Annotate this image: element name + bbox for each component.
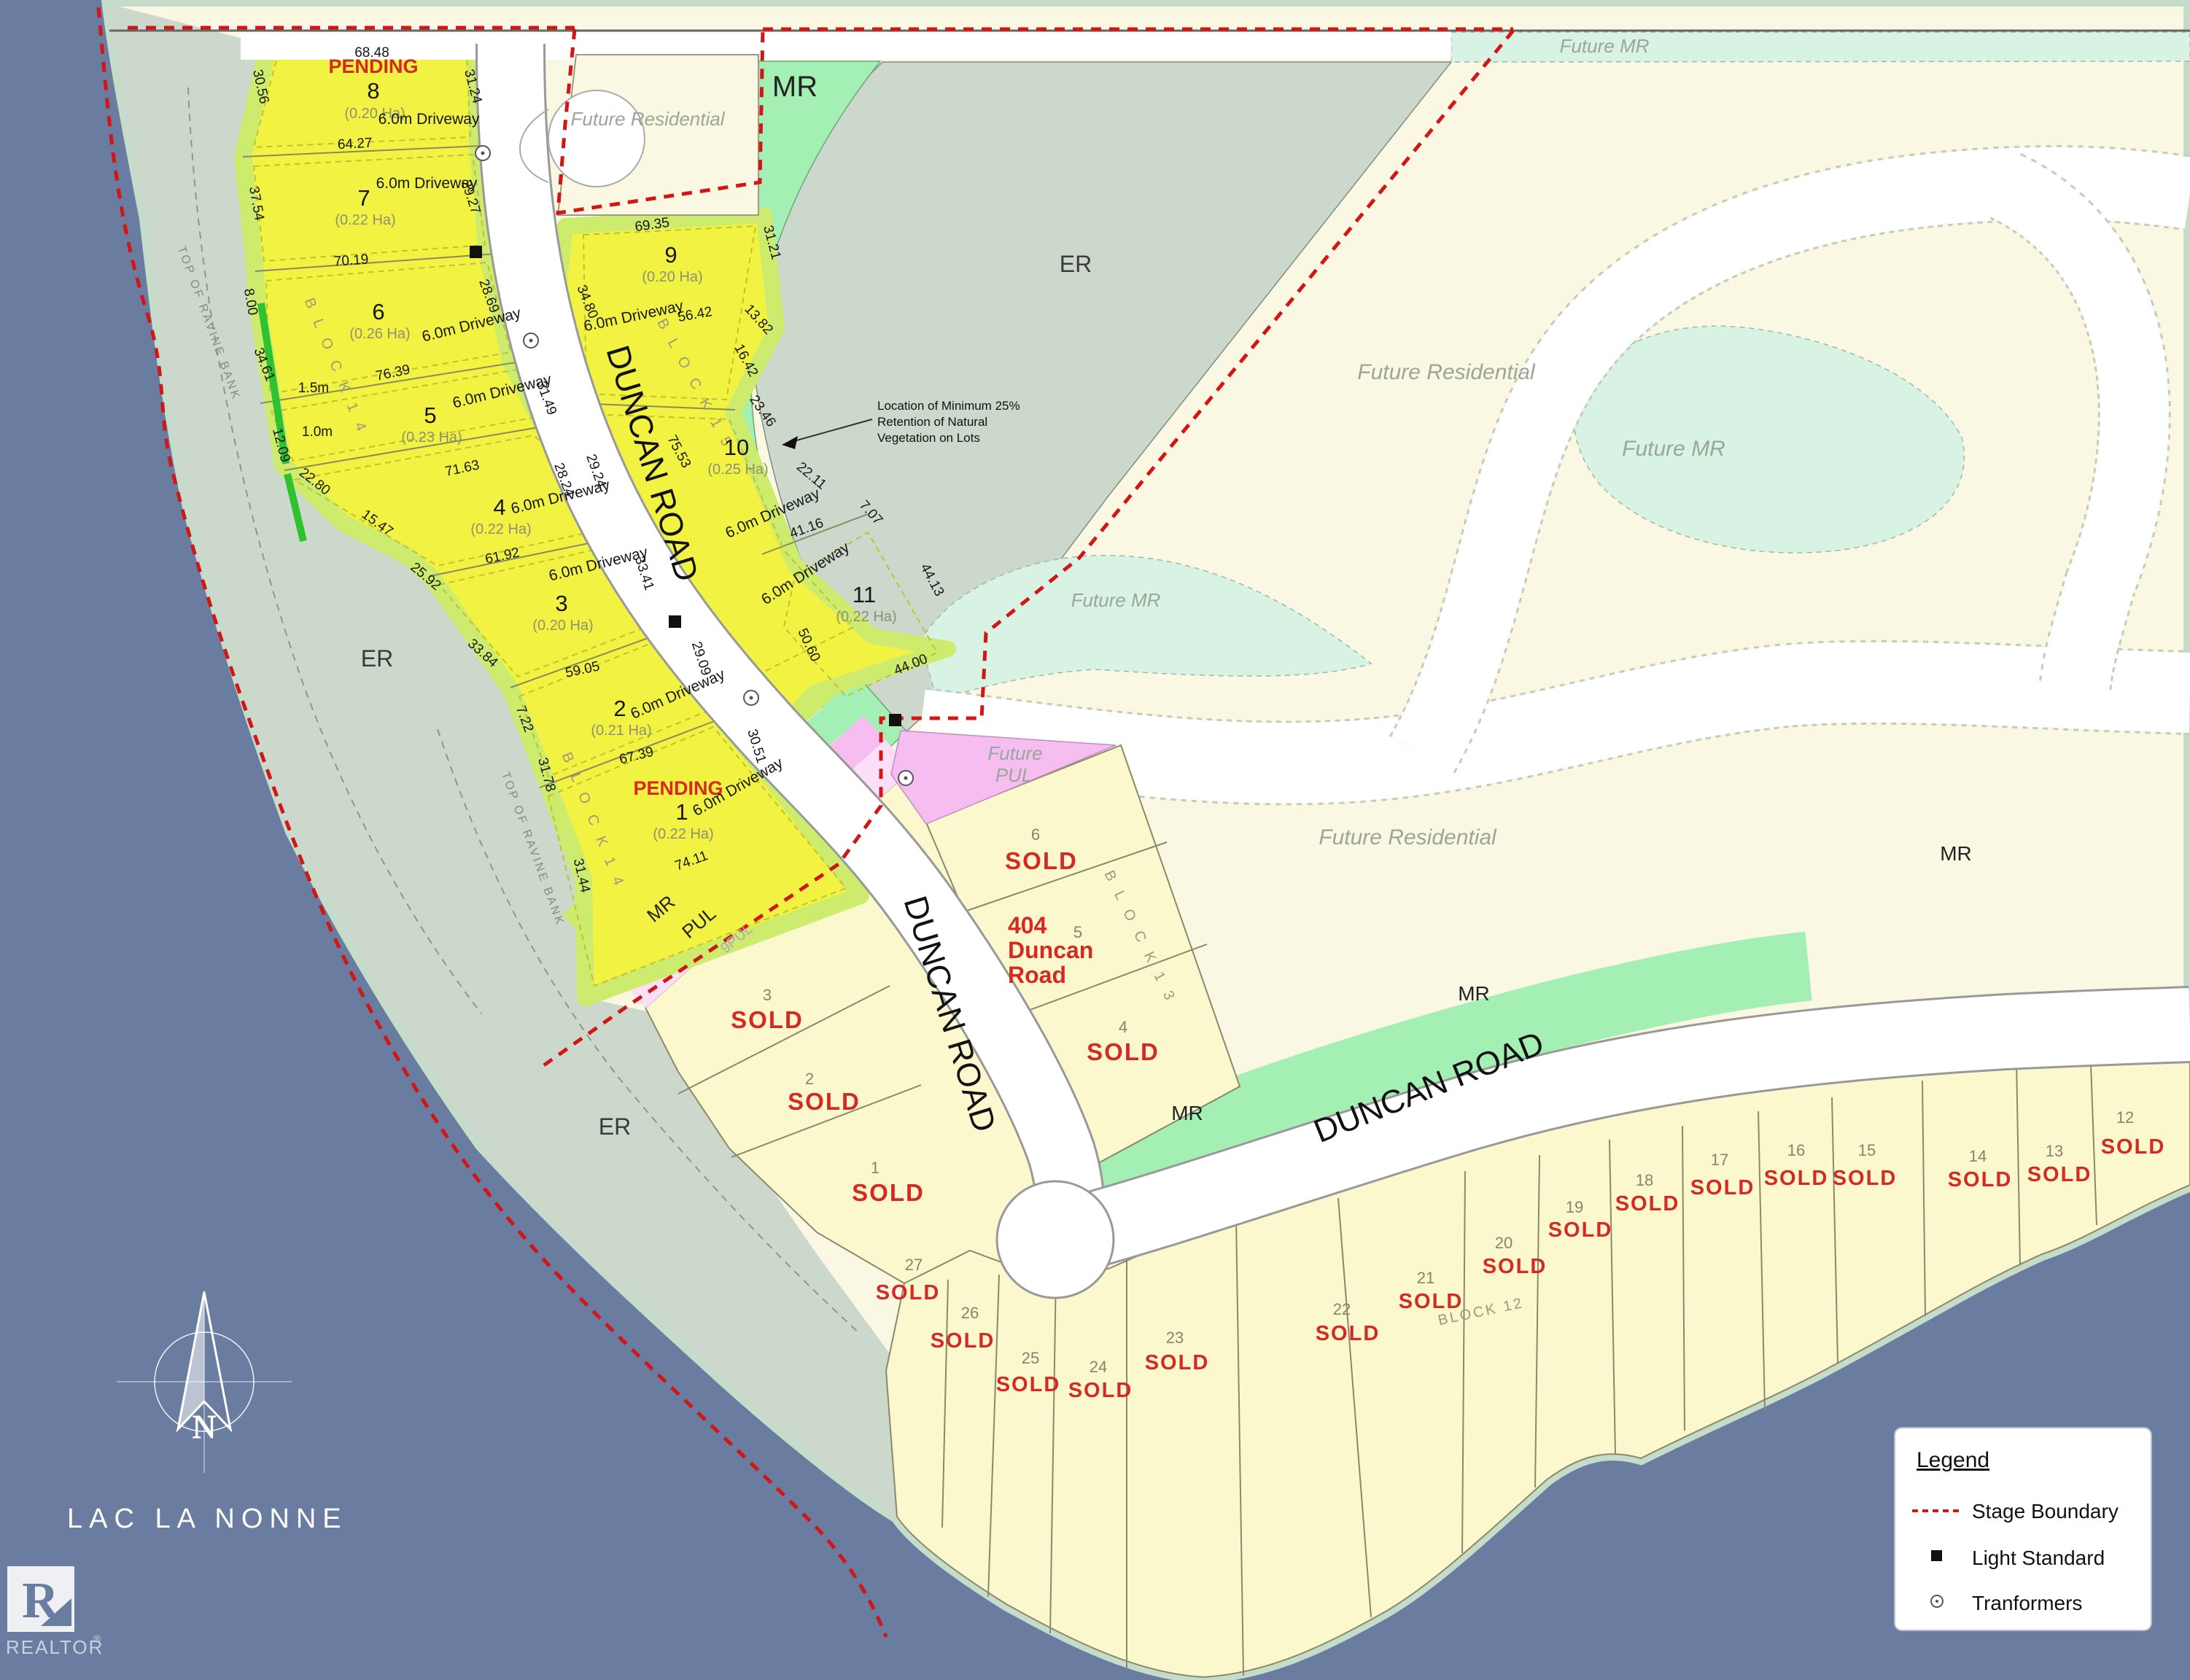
dimension-label: 70.19 — [333, 252, 369, 269]
lot-number: 5 — [424, 402, 436, 428]
lot-number: 1 — [871, 1159, 880, 1177]
sold-label: SOLD — [876, 1281, 941, 1304]
address-callout-line: 404 — [1008, 912, 1047, 938]
lot-number: 19 — [1566, 1198, 1583, 1216]
future-area-label: Future MR — [1560, 35, 1650, 57]
sold-label: SOLD — [1087, 1038, 1160, 1065]
lot-number: 24 — [1090, 1358, 1107, 1376]
legend-item-label: Stage Boundary — [1972, 1500, 2119, 1522]
lot-number: 15 — [1858, 1141, 1876, 1159]
sold-label: SOLD — [852, 1179, 925, 1206]
lake-name: LAC LA NONNE — [67, 1504, 348, 1534]
annotation-line: Location of Minimum 25% — [877, 399, 1020, 413]
lot-area: (0.22 Ha) — [653, 826, 713, 842]
lot-number: 9 — [664, 242, 677, 268]
lot-number: 21 — [1417, 1269, 1434, 1287]
sold-label: SOLD — [1690, 1176, 1755, 1199]
lot-number: 4 — [1119, 1018, 1127, 1036]
lot-number: 25 — [1022, 1349, 1039, 1367]
lot-number: 12 — [2116, 1108, 2134, 1127]
mr-reserve-label: MR — [772, 71, 818, 103]
lot-number: 10 — [724, 435, 749, 460]
future-area-label: Future Residential — [571, 108, 726, 130]
sold-label: SOLD — [2101, 1135, 2166, 1159]
sold-label: SOLD — [1833, 1167, 1898, 1190]
lot-area: (0.26 Ha) — [349, 326, 410, 342]
lot-number: 26 — [961, 1304, 979, 1322]
lot-area: (0.25 Ha) — [707, 462, 768, 478]
mr-reserve-label: MR — [1458, 982, 1490, 1005]
mr-reserve-label: MR — [1940, 842, 1972, 865]
lot-number: 2 — [805, 1070, 814, 1088]
lot-area: (0.22 Ha) — [470, 521, 531, 537]
lot-number: 22 — [1333, 1300, 1351, 1318]
compass-n: N — [192, 1408, 216, 1445]
lot-number: 7 — [357, 185, 370, 211]
er-reserve-label: ER — [599, 1113, 631, 1140]
plat-map: DUNCAN ROADDUNCAN ROADDUNCAN ROADB L O C… — [0, 0, 2190, 1680]
lot-area: (0.22 Ha) — [836, 609, 896, 625]
light-standard-sample — [1931, 1550, 1942, 1561]
dimension-label: 1.0m — [302, 424, 333, 440]
future-area-label: Future Residential — [1319, 825, 1497, 849]
driveway-label: 6.0m Driveway — [378, 111, 480, 128]
lot-number: 1 — [675, 799, 688, 825]
sold-label: SOLD — [1615, 1192, 1680, 1216]
dimension-label: 68.48 — [354, 45, 389, 61]
lot-number: 6 — [1031, 825, 1040, 844]
lot-number: 16 — [1787, 1141, 1805, 1159]
lot-number: 23 — [1166, 1329, 1184, 1347]
er-reserve-label: ER — [361, 645, 393, 672]
sold-label: SOLD — [1399, 1290, 1464, 1313]
sold-label: SOLD — [731, 1006, 804, 1033]
annotation-line: Retention of Natural — [877, 415, 987, 429]
lot-number: 13 — [2046, 1142, 2063, 1160]
future-area-label: Future — [987, 742, 1042, 764]
lot-number: 6 — [372, 299, 384, 324]
annotation-line: Vegetation on Lots — [877, 431, 980, 445]
registered-mark: ® — [93, 1633, 101, 1644]
legend: Legend Stage Boundary Light Standard Tra… — [1895, 1428, 2151, 1630]
lot-area: (0.22 Ha) — [335, 212, 395, 228]
sold-label: SOLD — [1145, 1351, 1210, 1374]
lot-number: 18 — [1636, 1171, 1653, 1189]
sold-label: SOLD — [931, 1329, 995, 1353]
sold-label: SOLD — [1483, 1255, 1548, 1278]
future-area-label: Future MR — [1622, 437, 1725, 461]
sold-label: SOLD — [788, 1088, 861, 1115]
lot-number: 2 — [613, 696, 626, 721]
future-area-label: PUL — [995, 764, 1033, 786]
legend-item-label: Tranformers — [1972, 1592, 2082, 1614]
sold-label: SOLD — [1764, 1167, 1829, 1190]
legend-item-label: Light Standard — [1972, 1547, 2105, 1569]
sold-label: SOLD — [1068, 1379, 1133, 1402]
lot-area: (0.20 Ha) — [642, 269, 702, 285]
lot-number: 5 — [1073, 923, 1082, 941]
lot-number: 14 — [1969, 1147, 1987, 1165]
mr-reserve-label: MR — [1171, 1102, 1203, 1124]
sold-label: SOLD — [2027, 1163, 2092, 1186]
future-area-label: Future Residential — [1357, 360, 1536, 384]
lot-number: 3 — [555, 591, 567, 616]
lot-area: (0.23 Ha) — [401, 429, 462, 446]
lot-area: (0.21 Ha) — [591, 723, 651, 739]
future-area-label: Future MR — [1071, 589, 1161, 611]
sold-label: SOLD — [996, 1373, 1061, 1396]
lot-number: 27 — [905, 1256, 923, 1274]
lot-number: 4 — [493, 494, 505, 520]
realtor-wordmark: REALTOR — [6, 1636, 104, 1658]
top-road-strip — [241, 32, 1451, 60]
address-callout-line: Road — [1008, 962, 1066, 988]
lot-number: 11 — [853, 582, 876, 607]
lot-number: 20 — [1495, 1234, 1513, 1252]
lot-number: 3 — [763, 986, 772, 1004]
dimension-label: 1.5m — [298, 381, 329, 396]
sold-label: SOLD — [1005, 847, 1078, 874]
legend-title: Legend — [1917, 1448, 1989, 1472]
lot-number: 17 — [1711, 1151, 1728, 1169]
sold-label: SOLD — [1548, 1218, 1613, 1242]
er-reserve-label: ER — [1060, 251, 1092, 277]
dimension-label: 64.27 — [337, 136, 373, 152]
transformer-sample-dot — [1935, 1600, 1938, 1603]
sold-label: SOLD — [1948, 1168, 2013, 1191]
lot-area: (0.20 Ha) — [532, 618, 593, 634]
sold-label: SOLD — [1316, 1322, 1381, 1345]
lot-number: 8 — [367, 78, 379, 104]
